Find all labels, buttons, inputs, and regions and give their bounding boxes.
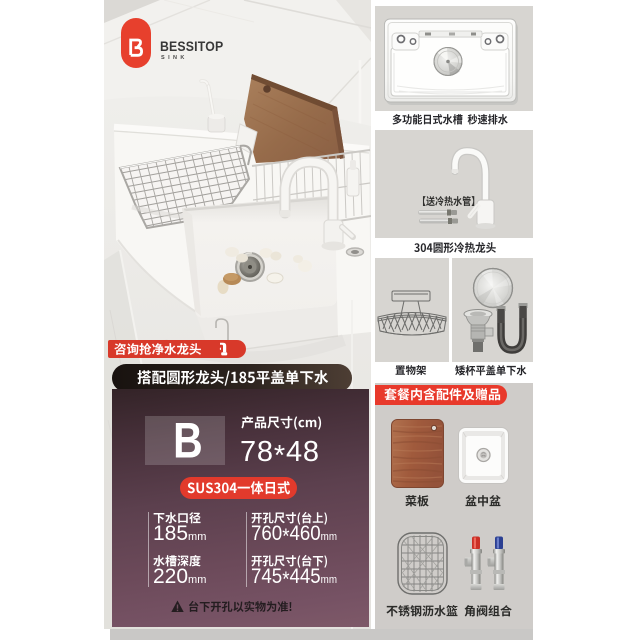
svg-text:B: B [173, 413, 203, 469]
